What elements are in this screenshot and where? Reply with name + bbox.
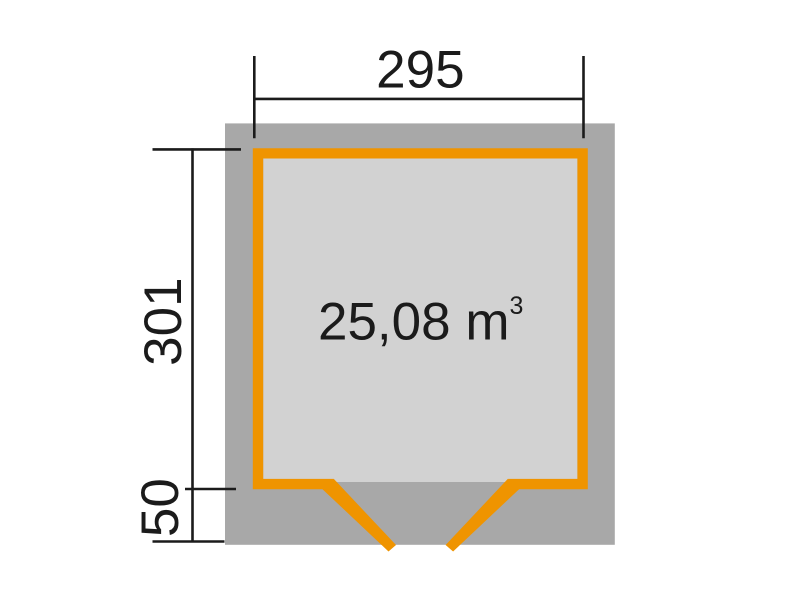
svg-text:301: 301 <box>134 277 193 365</box>
svg-text:50: 50 <box>131 478 190 537</box>
svg-text:25,08 m3: 25,08 m3 <box>318 292 523 352</box>
svg-text:295: 295 <box>376 40 464 99</box>
